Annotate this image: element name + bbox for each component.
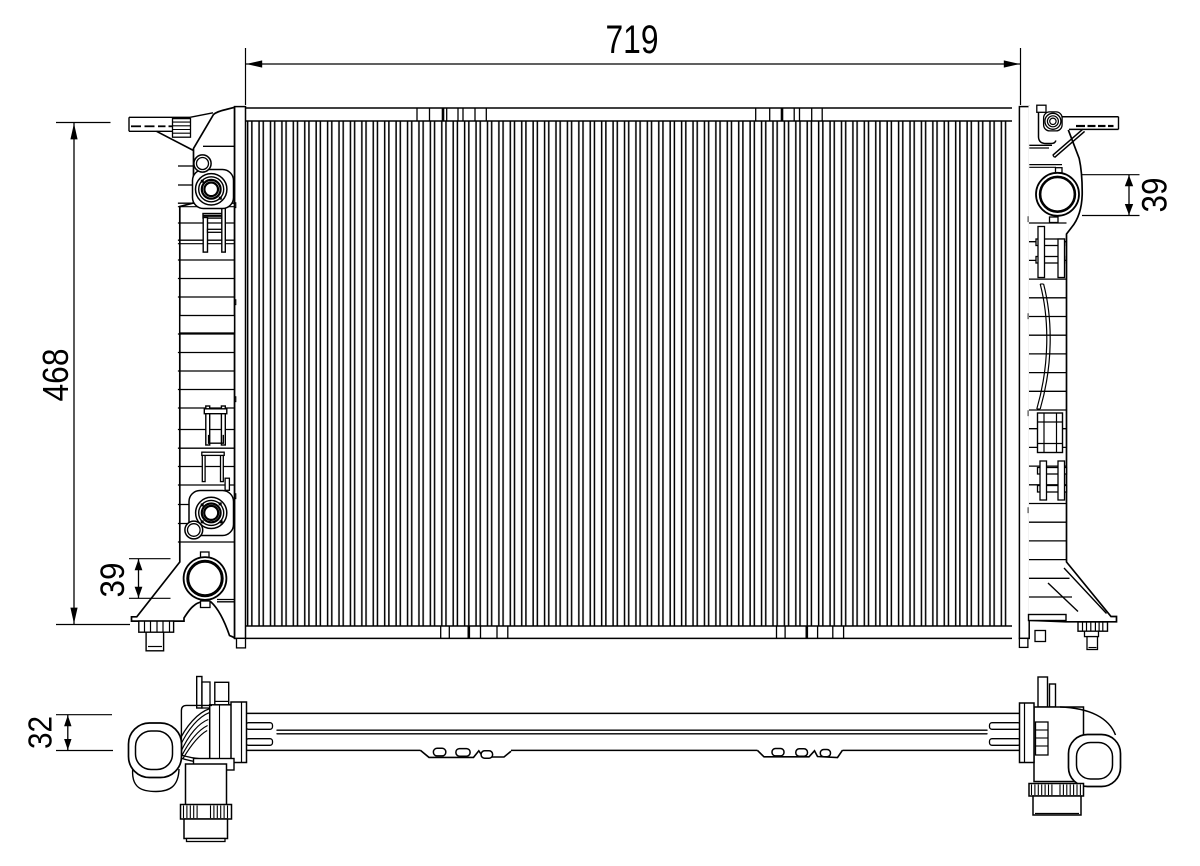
svg-text:468: 468 bbox=[35, 349, 76, 402]
svg-text:719: 719 bbox=[606, 18, 659, 62]
svg-text:39: 39 bbox=[1135, 178, 1175, 213]
svg-text:39: 39 bbox=[94, 563, 132, 598]
svg-text:32: 32 bbox=[23, 716, 60, 749]
